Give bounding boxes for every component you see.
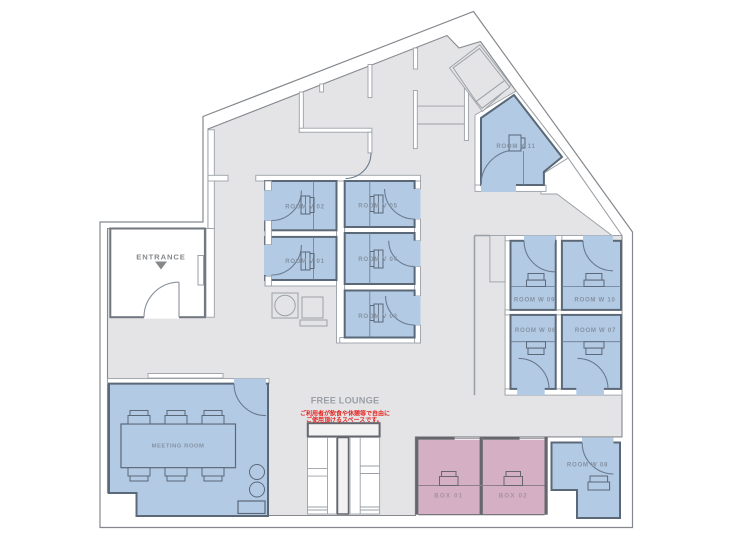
svg-text:ROOM V 04: ROOM V 04 xyxy=(358,256,398,263)
svg-text:ROOM W 10: ROOM W 10 xyxy=(574,297,615,304)
svg-text:ROOM X 11: ROOM X 11 xyxy=(496,143,535,150)
svg-text:MEETING ROOM: MEETING ROOM xyxy=(152,444,205,450)
svg-text:FREE LOUNGE: FREE LOUNGE xyxy=(311,396,380,406)
svg-text:ご利用者が飲食や休憩等で自由に: ご利用者が飲食や休憩等で自由に xyxy=(300,410,390,418)
svg-text:ROOM V 02: ROOM V 02 xyxy=(285,204,325,211)
svg-text:ROOM V 03: ROOM V 03 xyxy=(358,313,398,320)
svg-text:ROOM W 09: ROOM W 09 xyxy=(514,297,555,304)
svg-text:BOX 02: BOX 02 xyxy=(499,493,528,500)
svg-text:ENTRANCE: ENTRANCE xyxy=(136,253,185,262)
svg-text:ROOM W 06: ROOM W 06 xyxy=(515,327,556,334)
svg-text:BOX 01: BOX 01 xyxy=(434,493,463,500)
svg-text:ご使用頂けるスペースです。: ご使用頂けるスペースです。 xyxy=(306,416,383,424)
svg-text:ROOM W 07: ROOM W 07 xyxy=(575,327,616,334)
svg-text:ROOM W 08: ROOM W 08 xyxy=(567,462,608,469)
svg-text:ROOM V 05: ROOM V 05 xyxy=(358,203,398,210)
svg-text:ROOM V 01: ROOM V 01 xyxy=(285,258,325,265)
